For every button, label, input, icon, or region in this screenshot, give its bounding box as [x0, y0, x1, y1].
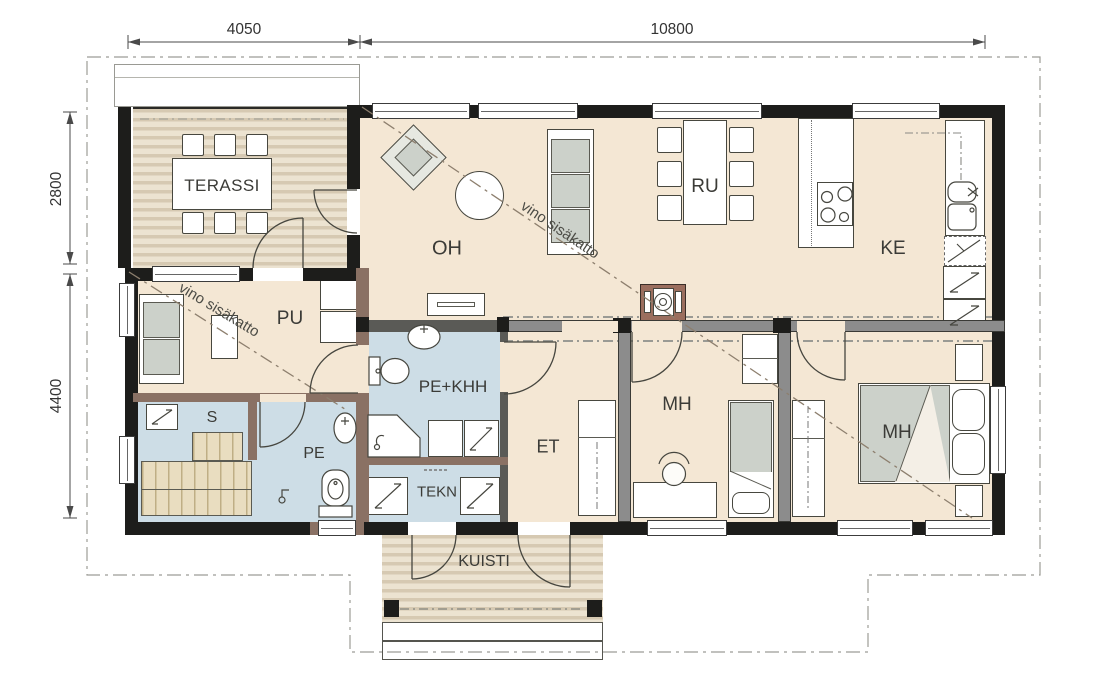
- dimension-label-top-right: 10800: [650, 21, 693, 39]
- hall-bedroom-wall: [618, 330, 631, 522]
- terrace-roof-eave: [114, 64, 360, 107]
- door-opening: [356, 345, 369, 393]
- floor-plan: TERASSI OH RU KE PU PE+KHH PE S TEKN ET …: [0, 0, 1100, 680]
- technical-door-opening: [408, 522, 456, 535]
- bedroom-wardrobe-shelf: [742, 358, 778, 359]
- door-opening: [562, 321, 618, 332]
- window: [852, 103, 940, 119]
- window: [990, 386, 1006, 474]
- hall-wardrobe: [578, 400, 616, 516]
- room-label-et: ET: [536, 437, 559, 458]
- nightstand: [955, 485, 983, 517]
- room-label-ru: RU: [691, 176, 718, 198]
- room-label-kuisti: KUISTI: [458, 553, 510, 571]
- terrace-roof-line: [115, 77, 359, 78]
- sauna-washroom-north-wall: [133, 393, 358, 402]
- room-label-mh-mid: MH: [662, 394, 692, 416]
- wall-junction-block: [497, 317, 509, 332]
- window: [837, 520, 913, 536]
- terrace-chair: [182, 134, 204, 156]
- sauna-stove: [146, 404, 178, 430]
- terrace-door-opening: [253, 268, 303, 281]
- room-label-mh-right: MH: [882, 422, 912, 444]
- wall-junction-block: [773, 318, 791, 333]
- master-wardrobe: [792, 400, 825, 517]
- workroom-cabinet: [320, 279, 358, 310]
- dimension-label-left-upper: 2800: [48, 172, 66, 206]
- sauna-washroom-divider: [248, 402, 257, 460]
- dimension-label-top-left: 4050: [227, 21, 261, 39]
- dining-chair: [729, 161, 754, 187]
- dryer: [464, 420, 499, 457]
- ventilation-unit: [460, 477, 500, 515]
- room-label-oh: OH: [432, 238, 462, 261]
- single-bed-mattress: [730, 402, 772, 472]
- terrace-wall-left: [118, 107, 131, 268]
- terrace-chair: [246, 212, 268, 234]
- window: [318, 520, 356, 536]
- window: [652, 103, 762, 119]
- porch-step-1: [382, 622, 603, 641]
- stove: [817, 182, 853, 226]
- master-wardrobe-shelf: [792, 438, 825, 439]
- bedroom-desk: [633, 482, 717, 518]
- nightstand: [955, 344, 983, 381]
- armchair-cushion: [394, 138, 432, 176]
- bathroom-north-wall: [360, 320, 508, 332]
- hall-wardrobe-shelf: [578, 437, 616, 438]
- double-bed-pillow: [952, 389, 985, 431]
- bathroom-east-wall-upper: [500, 332, 508, 342]
- window: [647, 520, 727, 536]
- window: [478, 103, 578, 119]
- room-label-s: S: [207, 409, 218, 427]
- sofa-cushion: [551, 174, 590, 208]
- workroom-cabinet: [320, 311, 358, 343]
- room-label-tekn: TEKN: [417, 484, 457, 501]
- workroom-sofa-cushion: [143, 339, 180, 375]
- terrace-chair: [182, 212, 204, 234]
- single-bed-pillow: [732, 492, 770, 514]
- dining-chair: [729, 127, 754, 153]
- door-opening: [632, 321, 682, 332]
- double-bed-pillow: [952, 433, 985, 475]
- kitchen-counter-edge: [811, 120, 812, 246]
- window: [925, 520, 993, 536]
- tv-sideboard-inner: [437, 302, 475, 307]
- terrace-door-opening: [347, 189, 360, 235]
- window-jamb: [310, 522, 318, 535]
- bathroom-technical-divider: [356, 457, 508, 465]
- wall-junction-block: [356, 317, 369, 332]
- terrace-chair: [246, 134, 268, 156]
- round-table: [455, 171, 504, 220]
- dishwasher: [944, 236, 986, 266]
- terrace-chair: [214, 134, 236, 156]
- bedroom-wardrobe: [742, 334, 778, 384]
- window: [372, 103, 470, 119]
- dining-chair: [657, 161, 682, 187]
- water-heater: [368, 477, 408, 515]
- room-label-pe: PE: [303, 445, 324, 463]
- dimension-label-left-lower: 4400: [48, 379, 66, 413]
- kitchen-wall-counter: [945, 120, 985, 236]
- porch-deck: [382, 535, 603, 622]
- dining-chair: [729, 195, 754, 221]
- sauna-bench-divider: [141, 489, 252, 490]
- ceiling-break-line-upper: [503, 316, 992, 318]
- fireplace-side: [675, 291, 682, 313]
- bedroom-divider-wall: [778, 330, 791, 522]
- refrigerator: [943, 266, 986, 299]
- sofa-cushion: [551, 139, 590, 173]
- window: [119, 436, 135, 484]
- room-label-ke: KE: [880, 238, 905, 260]
- workroom-sofa-cushion: [143, 302, 180, 338]
- entry-door-opening: [518, 522, 570, 535]
- room-label-pe-khh: PE+KHH: [419, 377, 488, 397]
- room-label-pu: PU: [277, 308, 303, 330]
- sauna-bench-upper: [192, 432, 243, 461]
- window: [119, 283, 135, 337]
- terrace-house-divider-wall: [347, 105, 360, 268]
- dining-chair: [657, 127, 682, 153]
- door-opening: [260, 394, 306, 402]
- dining-chair: [657, 195, 682, 221]
- porch-post: [384, 600, 399, 617]
- washing-machine: [428, 420, 463, 457]
- porch-step-2: [382, 641, 603, 660]
- terrace-chair: [214, 212, 236, 234]
- porch-post: [587, 600, 602, 617]
- door-opening: [797, 321, 845, 332]
- fireplace-hearth: [653, 288, 674, 316]
- room-label-terassi: TERASSI: [184, 176, 260, 196]
- fireplace-side: [644, 291, 651, 313]
- dining-table: [683, 120, 727, 225]
- window-jamb: [356, 522, 364, 535]
- window: [152, 266, 240, 282]
